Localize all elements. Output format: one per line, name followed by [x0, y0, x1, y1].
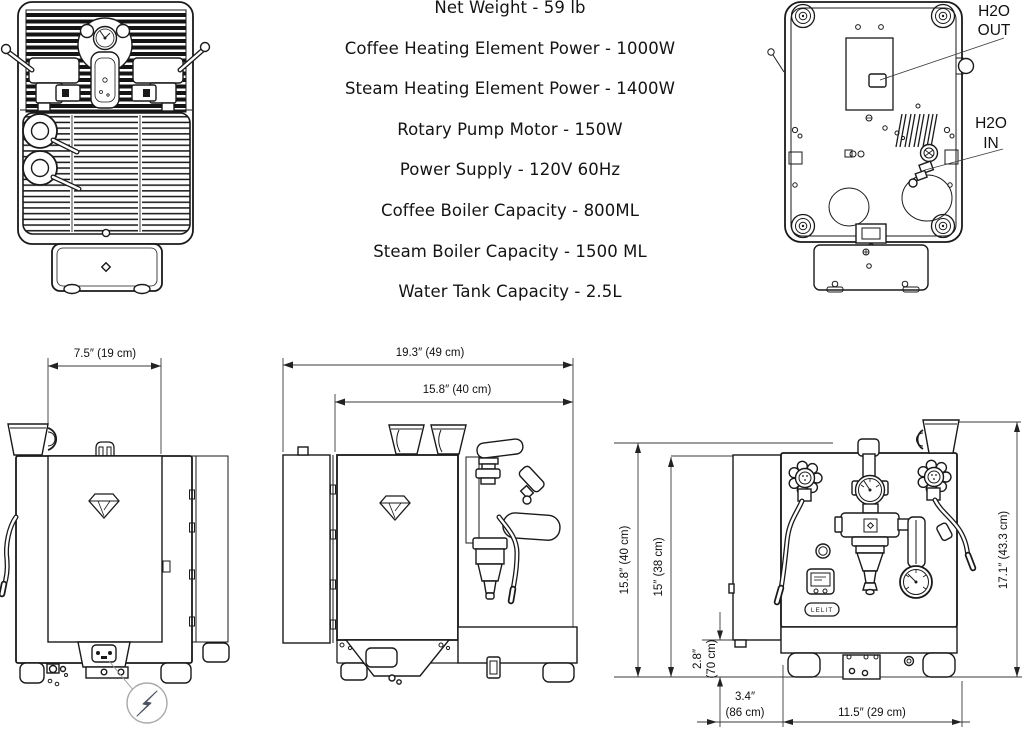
h2o-out-fitting: [869, 74, 886, 87]
boiler-gauge-front: [900, 566, 932, 598]
foot-right: [161, 663, 191, 683]
dim-depth-total-label: 19.3″ (49 cm): [396, 347, 465, 359]
h2o-out-label-line1: H2O: [978, 3, 1010, 20]
machine-rear-body: [16, 442, 228, 663]
spec-power-supply: Power Supply - 120V 60Hz: [299, 150, 721, 191]
base-front-details: [788, 653, 955, 679]
dim-base-height-in: 2.8″: [692, 649, 704, 669]
h2o-in-label-line2: IN: [983, 135, 999, 152]
top-view-drawing: [0, 0, 240, 310]
machine-spec-sheet: Net Weight - 59 lb Coffee Heating Elemen…: [0, 0, 1024, 730]
h2o-out-label-line2: OUT: [978, 22, 1011, 39]
group-head-side: [458, 438, 561, 627]
spec-net-weight: Net Weight - 59 lb: [299, 0, 721, 29]
electrical-icon: [127, 683, 167, 723]
rear-fittings: [47, 664, 68, 686]
spec-list: Net Weight - 59 lb Coffee Heating Elemen…: [299, 0, 721, 313]
cup-on-top: [8, 424, 56, 455]
dim-height-total-label: 15.8″ (40 cm): [619, 526, 631, 595]
dim-rear-depth-in: 3.4″: [735, 691, 755, 703]
foot-left: [20, 663, 44, 683]
display-front: [807, 569, 834, 594]
spec-pump-motor: Rotary Pump Motor - 150W: [299, 110, 721, 151]
water-tank-front: [729, 455, 781, 647]
left-clip: [768, 49, 784, 72]
h2o-in-label-line1: H2O: [975, 115, 1007, 132]
rear-dimension-view: 7.5″ (19 cm): [0, 330, 245, 730]
front-foot-left: [788, 653, 820, 677]
front-dimension-view: 15.8″ (40 cm) 15″ (38 cm) 2.8″ (70 cm) 3…: [610, 400, 1024, 730]
dim-depth-body-label: 15.8″ (40 cm): [423, 384, 492, 396]
dim-height-body-label: 15″ (38 cm): [653, 537, 665, 596]
water-tank-side: [283, 447, 330, 643]
steam-wand-rear: [2, 517, 16, 594]
dim-back-width: 7.5″ (19 cm): [48, 348, 161, 454]
dim-base-height-cm: (70 cm): [706, 639, 718, 678]
brand-logo-text: LELIT: [811, 607, 833, 614]
side-dimension-view: 19.3″ (49 cm) 15.8″ (40 cm): [270, 335, 610, 730]
dim-rear-depth-cm: (86 cm): [726, 707, 765, 719]
front-foot-right: [923, 653, 955, 677]
machine-side-body: [331, 455, 459, 663]
spec-coffee-element: Coffee Heating Element Power - 1000W: [299, 29, 721, 70]
spec-water-tank: Water Tank Capacity - 2.5L: [299, 272, 721, 313]
dim-front-width-label: 11.5″ (29 cm): [838, 707, 906, 719]
drip-tray-back: [814, 245, 928, 292]
back-view-drawing: H2O OUT H2O IN: [740, 0, 1024, 300]
steam-valve-column: [908, 517, 925, 567]
spec-coffee-boiler: Coffee Boiler Capacity - 800ML: [299, 191, 721, 232]
spec-steam-boiler: Steam Boiler Capacity - 1500 ML: [299, 232, 721, 273]
drain-hole: [102, 229, 109, 236]
foot-side: [203, 643, 229, 662]
drip-tray-top: [52, 244, 162, 294]
power-inlet: [78, 642, 130, 678]
spec-steam-element: Steam Heating Element Power - 1400W: [299, 69, 721, 110]
dim-back-width-label: 7.5″ (19 cm): [74, 348, 136, 360]
cup-on-top-front: [917, 420, 960, 453]
power-button: [816, 544, 830, 558]
cups-on-top: [389, 425, 466, 454]
dim-height-with-cup-label: 17.1″ (43.3 cm): [998, 511, 1010, 589]
